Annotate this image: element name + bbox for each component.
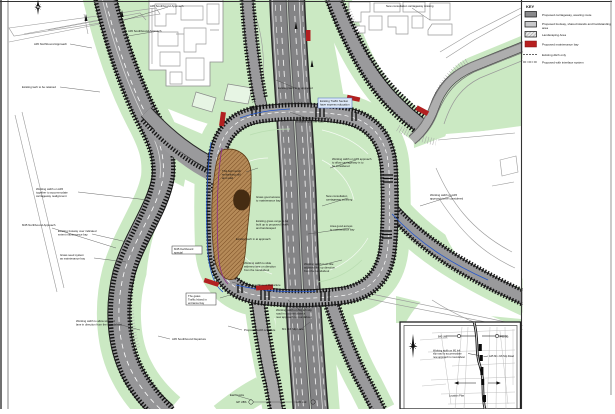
svg-text:a widening of the road: a widening of the road — [296, 119, 324, 123]
svg-text:new approach to roundabout: new approach to roundabout — [276, 315, 312, 319]
svg-text:M45 Northbound Approach: M45 Northbound Approach — [22, 223, 56, 227]
svg-text:A45 mid: A45 mid — [296, 400, 307, 404]
svg-text:M45 Southbound Departure: M45 Southbound Departure — [246, 283, 281, 287]
svg-text:to maintenance bay: to maintenance bay — [256, 198, 281, 202]
svg-text:from the roundabout: from the roundabout — [304, 269, 329, 273]
svg-text:A45 Southbound Departure: A45 Southbound Departure — [172, 337, 206, 341]
svg-text:Existing kerb in to upgraded: Existing kerb in to upgraded — [278, 86, 313, 90]
svg-text:B45 (M): B45 (M) — [438, 335, 447, 338]
svg-text:carriageway crossing: carriageway crossing — [326, 197, 353, 201]
svg-text:lane in direction from the rou: lane in direction from the roundabout — [76, 322, 122, 326]
svg-text:to maintenance bay: to maintenance bay — [330, 227, 355, 231]
svg-text:be considered: be considered — [332, 164, 350, 168]
svg-text:Location Plan: Location Plan — [449, 395, 465, 398]
svg-text:Proposed width schedule: Proposed width schedule — [244, 328, 276, 332]
svg-text:New consultation carriageway m: New consultation carriageway missing — [386, 4, 434, 8]
svg-text:and landscaped: and landscaped — [256, 226, 276, 230]
svg-text:Proposed maintenance bay: Proposed maintenance bay — [542, 43, 579, 47]
svg-text:new approach to roundabout: new approach to roundabout — [433, 356, 465, 359]
svg-text:M1 J16 Slip Lane: M1 J16 Slip Lane — [282, 327, 304, 331]
svg-text:A45 M1 J16 Slip Road: A45 M1 J16 Slip Road — [489, 355, 514, 358]
svg-text:Earthworks: Earthworks — [230, 393, 245, 397]
svg-text:GP UBS: GP UBS — [236, 400, 247, 404]
svg-text:approach to be considered: approach to be considered — [430, 196, 464, 200]
svg-text:A45 Northbound Approach: A45 Northbound Approach — [34, 42, 67, 46]
svg-text:from the roundabout: from the roundabout — [244, 268, 269, 272]
svg-text:Proposed with interface system: Proposed with interface system — [542, 60, 584, 64]
svg-text:special: special — [174, 250, 183, 254]
svg-text:entrance bay: entrance bay — [188, 301, 205, 305]
svg-text:area: area — [542, 26, 548, 30]
svg-text:A45 Southbound Approach: A45 Southbound Approach — [128, 29, 162, 33]
svg-text:A45 Southbound Approach: A45 Southbound Approach — [150, 4, 184, 8]
svg-text:and solid: and solid — [222, 176, 234, 180]
svg-text:Existing kerb in at approach: Existing kerb in at approach — [236, 237, 271, 241]
svg-text:Proposed carriageway, wearing: Proposed carriageway, wearing route — [542, 13, 592, 17]
svg-text:Existing kerb to be retained: Existing kerb to be retained — [22, 85, 56, 89]
svg-text:carriageway realignment: carriageway realignment — [36, 194, 67, 198]
svg-text:Landscaping Area: Landscaping Area — [542, 33, 566, 37]
svg-text:as maintenance bay: as maintenance bay — [60, 256, 86, 260]
svg-text:Existing ditch only: Existing ditch only — [542, 53, 567, 57]
svg-text:Proposed footway, shared islan: Proposed footway, shared islands and har… — [542, 22, 611, 26]
svg-text:extent maintenance bay: extent maintenance bay — [58, 232, 88, 236]
svg-text:KEY: KEY — [526, 4, 535, 9]
svg-text:A45 (M): A45 (M) — [500, 335, 509, 338]
svg-text:have express education: have express education — [320, 102, 350, 106]
